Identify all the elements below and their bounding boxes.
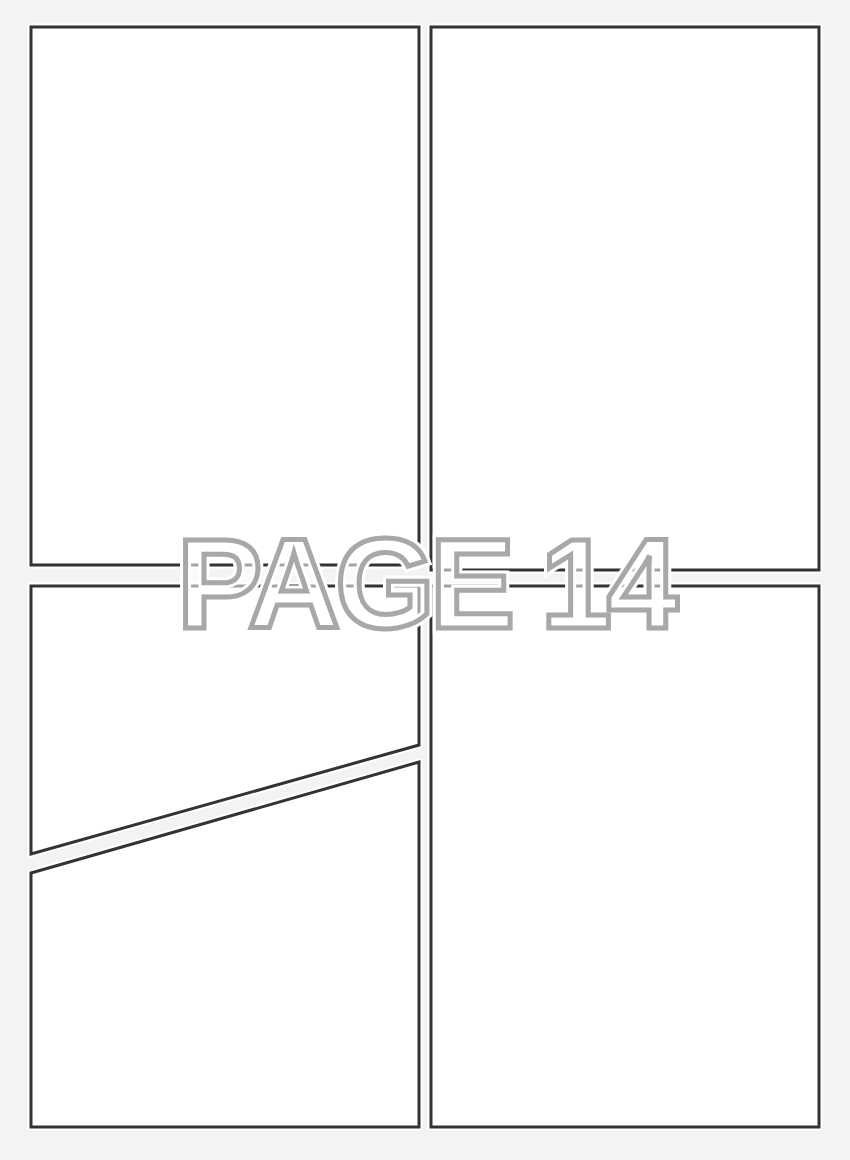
comic-page-template: PAGE 14 PAGE 14 — [0, 0, 850, 1160]
panel-bottom-right — [431, 586, 819, 1127]
panel-grid — [0, 0, 850, 1160]
panel-top-left — [31, 27, 419, 565]
panel-top-right — [431, 27, 819, 570]
